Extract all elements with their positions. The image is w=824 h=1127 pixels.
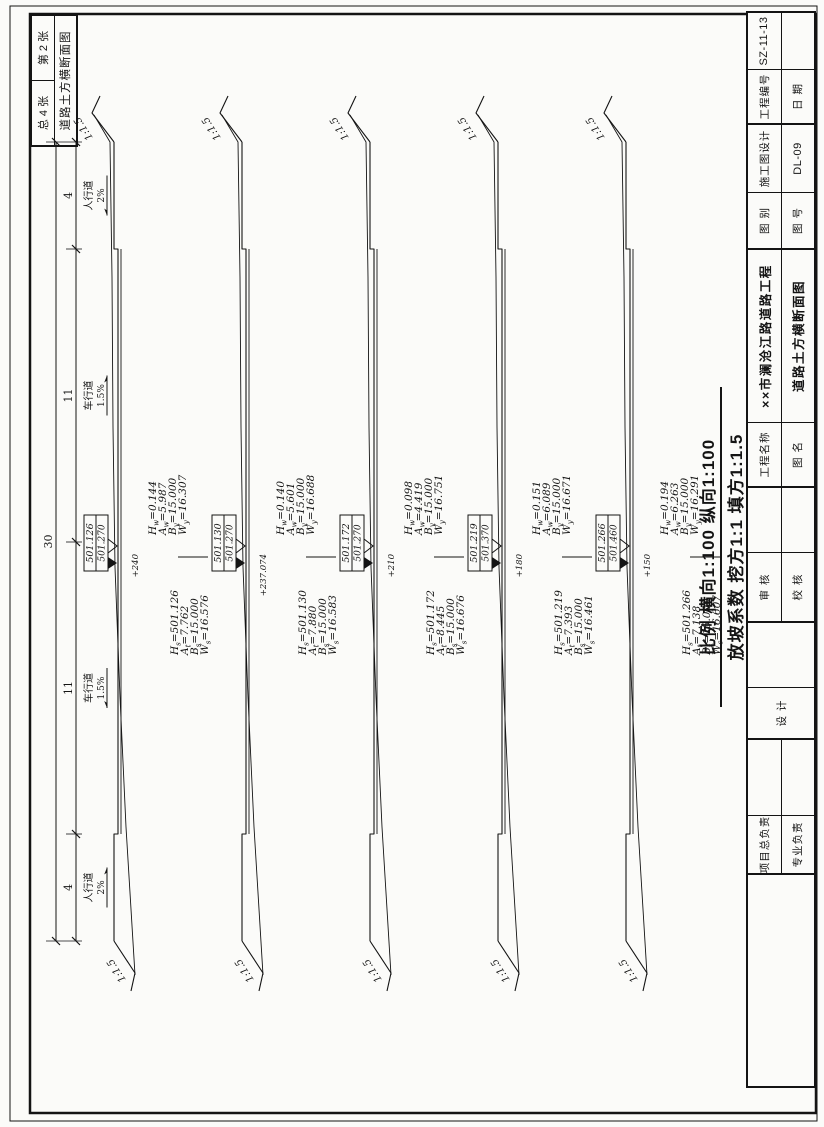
slope-ratio-label: 1:1.5 <box>489 957 512 984</box>
cross-sections: 1:1.51:1.5501.126501.270+240Hw=0.144Aw=5… <box>72 96 724 991</box>
category-value: 施工图设计 <box>748 125 781 192</box>
dim-segment-label: 4 <box>62 192 75 199</box>
screenshot-root: 304人行道2%11车行道1.5%11车行道1.5%4人行道2% 1:1.51:… <box>0 0 824 1127</box>
flag-ground-elevation: 501.460 <box>610 524 620 561</box>
section-profile-line <box>604 96 626 142</box>
section-profile-line <box>476 96 498 142</box>
designer-name-cell <box>748 623 814 688</box>
title-block: 项目总负责 专业负责 设 计 审 核 校 核 工程名称 <box>746 11 816 1088</box>
flag-ground-elevation: 501.270 <box>226 524 236 561</box>
slope-coefficient-note: 放坡系数 挖方1:1 填方1:1.5 <box>722 377 747 717</box>
date-label: 日 期 <box>781 70 815 123</box>
dim-segment-label: 4 <box>62 884 75 891</box>
lane-name-label: 人行道 <box>82 181 95 211</box>
code-label: 工程编号 <box>748 70 781 123</box>
station-label: +237.074 <box>259 554 269 596</box>
flag-pointer-hollow-icon <box>108 539 117 553</box>
section-row-2: 1:1.51:1.5501.130501.270+237.074Hw=0.140… <box>200 96 340 991</box>
reviewer-name <box>748 488 781 552</box>
flag-pointer-hollow-icon <box>620 539 629 553</box>
cut-data-block: Wy=16.307 <box>177 474 191 535</box>
code-date-labels: 工程编号 日 期 <box>748 70 814 125</box>
drawing-name-value: 道路土方横断面图 <box>781 250 815 422</box>
discipline-lead-name <box>781 740 815 815</box>
flag-ground-elevation: 501.270 <box>354 524 364 561</box>
cut-data-block: Wy=16.751 <box>433 475 447 535</box>
category-label: 图 别 <box>748 193 781 248</box>
section-row-3: 1:1.51:1.5501.172501.270+210Hw=0.098Aw=4… <box>328 96 468 991</box>
cut-data-block: Wy=16.688 <box>305 474 319 535</box>
review-labels: 审 核 校 核 <box>748 553 814 623</box>
slope-ratio-label: 1:1.5 <box>233 957 256 984</box>
reviewer-label: 审 核 <box>748 553 781 621</box>
scale-note: 比例 横向1:100 纵向1:100 <box>694 387 722 707</box>
flag-design-elevation: 501.130 <box>213 523 224 562</box>
code-value: SZ-11-13 <box>748 13 781 69</box>
responsible-names <box>748 740 814 816</box>
flag-design-elevation: 501.172 <box>341 523 352 562</box>
cut-data-block: Wy=16.671 <box>561 475 575 535</box>
section-row-4: 1:1.51:1.5501.219501.370+180Hw=0.151Aw=6… <box>456 96 596 991</box>
flag-ground-elevation: 501.370 <box>482 524 492 561</box>
station-label: +150 <box>643 553 653 577</box>
slope-ratio-label: 1:1.5 <box>584 115 607 142</box>
section-row-1: 1:1.51:1.5501.126501.270+240Hw=0.144Aw=5… <box>72 96 212 991</box>
pages-total: 总 4 张 <box>32 81 54 145</box>
lane-name-label: 车行道 <box>82 381 95 411</box>
flag-pointer-filled-icon <box>236 557 245 569</box>
station-label: +240 <box>131 553 141 577</box>
flag-pointer-hollow-icon <box>364 539 373 553</box>
flag-pointer-filled-icon <box>492 557 501 569</box>
pages-current: 第 2 张 <box>32 16 54 81</box>
flag-design-elevation: 501.266 <box>597 523 608 562</box>
flag-pointer-hollow-icon <box>492 539 501 553</box>
drawing-name-label: 图 名 <box>781 423 815 486</box>
category-number-labels: 图 别 图 号 <box>748 193 814 250</box>
section-profile-line <box>92 96 114 142</box>
lane-name-label: 人行道 <box>82 873 95 903</box>
flag-pointer-hollow-icon <box>236 539 245 553</box>
flag-ground-elevation: 501.270 <box>98 524 108 561</box>
slope-ratio-label: 1:1.5 <box>456 115 479 142</box>
flag-pointer-filled-icon <box>620 557 629 569</box>
pages-table: 总 4 张 第 2 张 道路土方横断面图 <box>30 14 78 147</box>
discipline-lead-label: 专业负责 <box>781 816 815 873</box>
flag-pointer-filled-icon <box>364 557 373 569</box>
fill-data-block: Ws=16.583 <box>327 595 341 655</box>
name-labels: 工程名称 图 名 <box>748 423 814 488</box>
project-lead-name <box>748 740 781 815</box>
project-lead-label: 项目总负责 <box>748 816 781 873</box>
dim-total-label: 30 <box>42 535 55 549</box>
category-number-values: 施工图设计 DL-09 <box>748 125 814 193</box>
date-value <box>781 13 815 69</box>
lane-slope-label: 2% <box>97 188 107 203</box>
design-firm-cell <box>748 875 814 1086</box>
flag-pointer-filled-icon <box>108 557 117 569</box>
checker-label: 校 核 <box>781 553 815 621</box>
slope-ratio-label: 1:1.5 <box>200 115 223 142</box>
designer-label-cell: 设 计 <box>748 688 814 740</box>
slope-ratio-label: 1:1.5 <box>361 957 384 984</box>
lane-slope-label: 1.5% <box>97 676 107 699</box>
flag-design-elevation: 501.126 <box>85 523 96 562</box>
dim-segment-label: 11 <box>62 681 75 695</box>
slope-ratio-label: 1:1.5 <box>328 115 351 142</box>
section-profile-line <box>348 96 370 142</box>
lane-name-label: 车行道 <box>82 673 95 703</box>
lane-slope-label: 2% <box>97 880 107 895</box>
checker-name <box>781 488 815 552</box>
lane-slope-label: 1.5% <box>97 384 107 407</box>
fill-data-block: Ws=16.461 <box>583 595 597 655</box>
project-name-label: 工程名称 <box>748 423 781 486</box>
review-names <box>748 488 814 553</box>
fill-data-block: Ws=16.576 <box>199 595 213 655</box>
slope-ratio-label: 1:1.5 <box>105 957 128 984</box>
design-firm-blank <box>748 875 814 1086</box>
code-date-values: SZ-11-13 <box>748 13 814 70</box>
section-profile-line <box>220 96 242 142</box>
designer-label: 设 计 <box>748 688 814 738</box>
project-name-value: ××市澜沧江路道路工程 <box>748 250 781 422</box>
slope-ratio-label: 1:1.5 <box>617 957 640 984</box>
designer-name <box>748 623 814 687</box>
name-values: ××市澜沧江路道路工程 道路土方横断面图 <box>748 250 814 423</box>
fill-data-block: Ws=16.676 <box>455 595 469 655</box>
flag-design-elevation: 501.219 <box>469 523 480 562</box>
station-label: +210 <box>387 553 397 577</box>
responsible-labels: 项目总负责 专业负责 <box>748 816 814 875</box>
number-value: DL-09 <box>781 125 815 192</box>
drawing-sheet: 304人行道2%11车行道1.5%11车行道1.5%4人行道2% 1:1.51:… <box>0 0 824 1127</box>
number-label: 图 号 <box>781 193 815 248</box>
dim-segment-label: 11 <box>62 389 75 403</box>
sheet-subtitle: 道路土方横断面图 <box>54 16 77 145</box>
station-label: +180 <box>515 553 525 577</box>
